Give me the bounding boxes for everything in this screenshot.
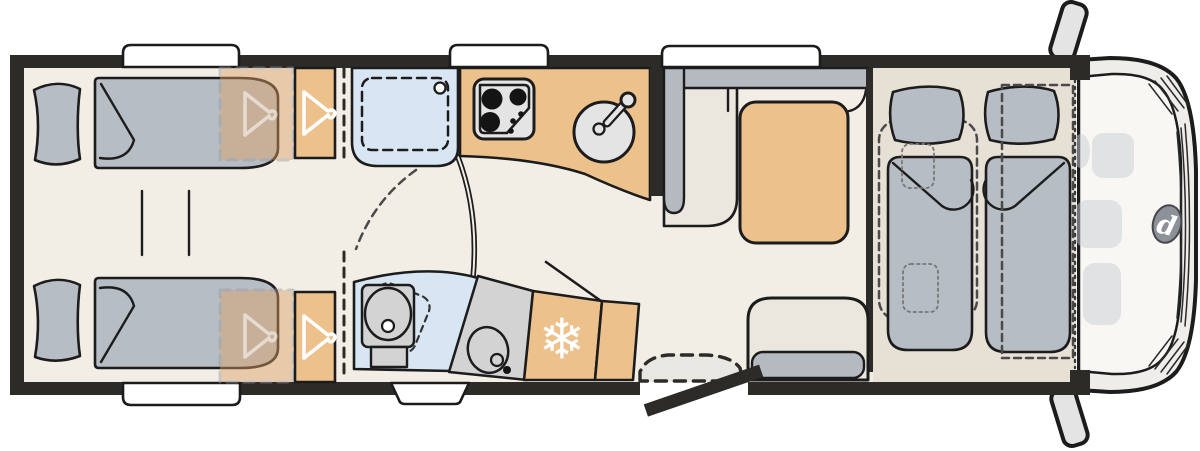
kitchen-partition-wall (650, 68, 664, 196)
toilet-pedestal (371, 347, 407, 367)
mirror-top-icon (1048, 0, 1089, 63)
mattress (986, 157, 1070, 352)
toilet-flush (382, 320, 394, 332)
fridge: ❄ (524, 291, 602, 380)
wall-rear (10, 55, 24, 395)
hob-burner (480, 112, 500, 132)
basin-knob (503, 366, 511, 374)
shower-drain (435, 83, 446, 94)
l-bench-backrest-side (664, 68, 684, 213)
wardrobe-bottom-overlay (220, 290, 293, 382)
side-bench (748, 298, 868, 380)
dinette-table (740, 102, 848, 243)
window-top-rear (123, 45, 239, 67)
pillow (890, 87, 963, 144)
hob-burner (510, 89, 527, 106)
hob (474, 79, 534, 139)
center-step-unit (24, 191, 252, 255)
wall-bottom-right (748, 382, 1090, 395)
motorhome-floorplan: d (0, 0, 1200, 451)
basin-faucet (491, 354, 503, 366)
drop-down-bed-left (888, 87, 973, 350)
side-bench-cushion (752, 352, 864, 378)
wall-bottom-left (10, 382, 640, 395)
driver-seat (1092, 133, 1134, 178)
window-bottom-rear (123, 383, 240, 405)
wall-stub-top (1070, 55, 1090, 80)
snowflake-icon: ❄ (539, 308, 586, 373)
pillow (34, 280, 80, 361)
passenger-seat (1083, 263, 1121, 325)
window-bottom-washroom (391, 383, 469, 404)
mattress (888, 157, 972, 350)
center-seat (1075, 200, 1122, 248)
window-top-dinette (662, 46, 820, 67)
shower (352, 68, 458, 166)
hob-knob (510, 118, 516, 124)
faucet-base (621, 93, 635, 107)
wardrobe-bottom (295, 292, 335, 382)
floorplan-svg: d (0, 0, 1200, 451)
pillow (34, 84, 80, 165)
window-top-middle (450, 45, 548, 67)
wall-stub-bottom (1070, 370, 1090, 395)
hob-knob (518, 111, 524, 117)
hob-knob (508, 128, 514, 134)
wardrobe-top-overlay (220, 68, 293, 160)
pillow (985, 87, 1058, 144)
l-bench-backrest-top (664, 68, 868, 88)
wardrobe-top (295, 68, 335, 158)
hob-burner (482, 89, 503, 110)
tall-cabinet (595, 301, 639, 380)
